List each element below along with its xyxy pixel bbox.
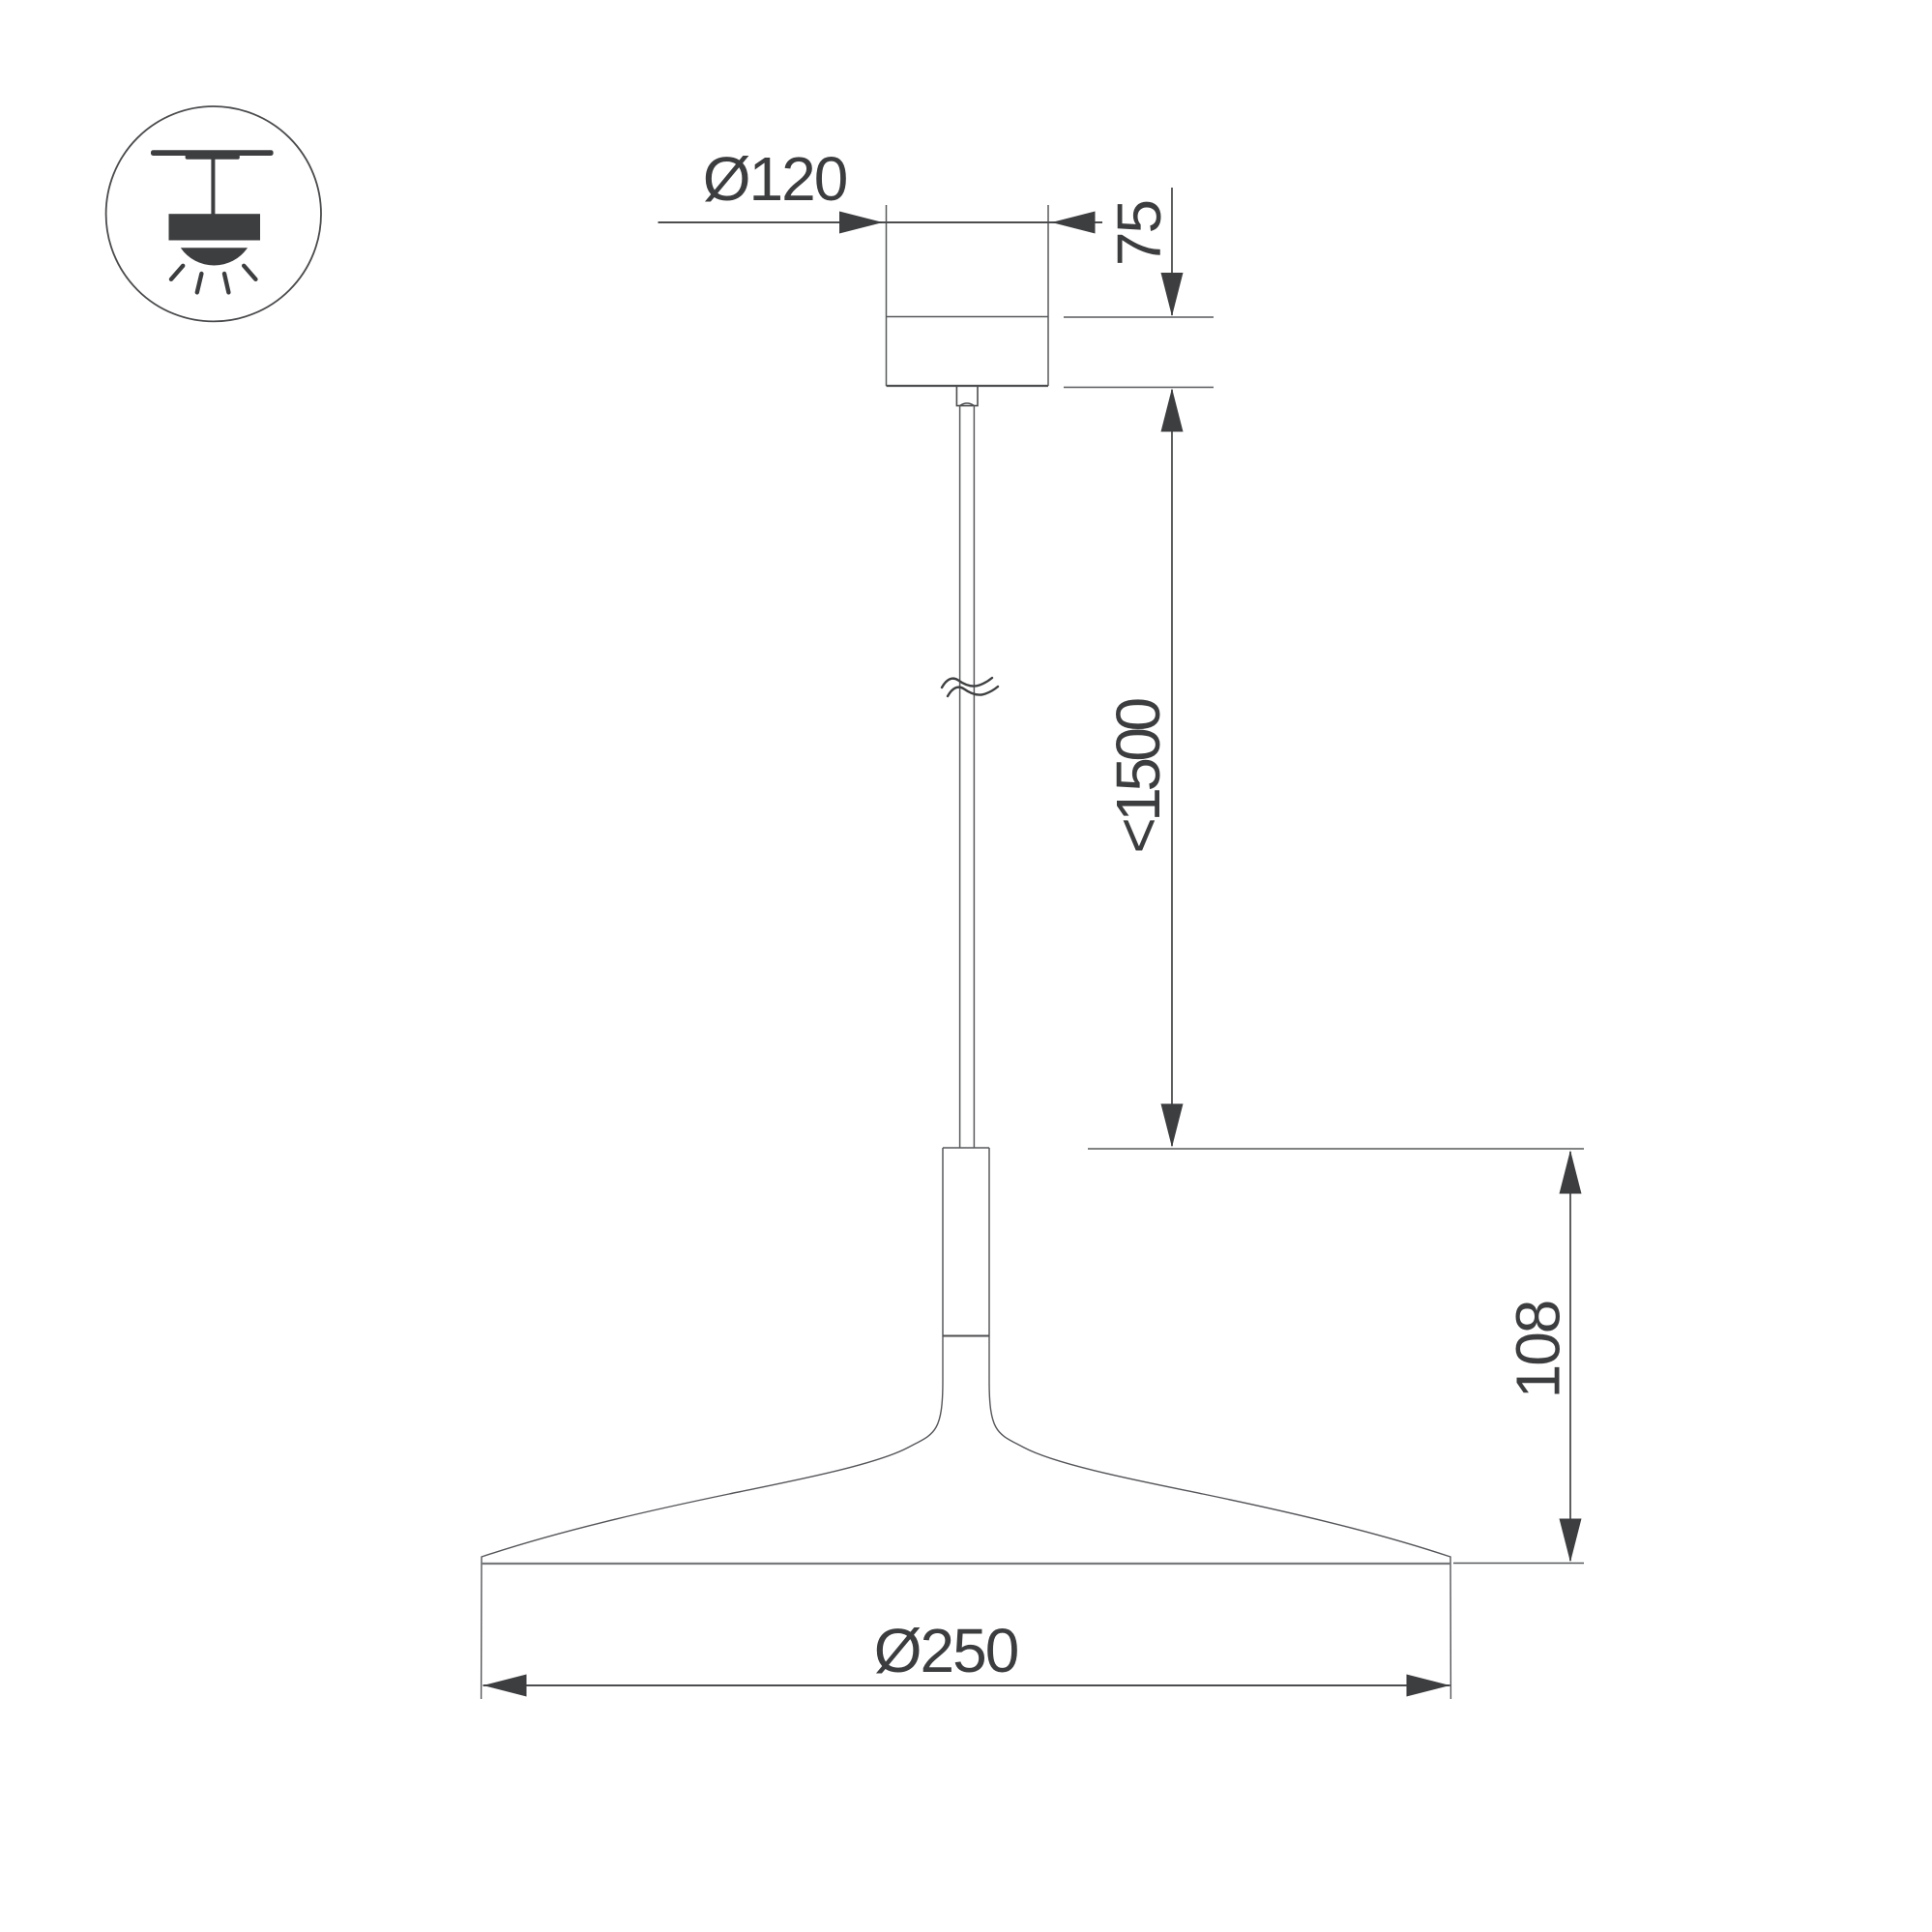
svg-text:<1500: <1500 [1103, 698, 1173, 853]
svg-text:75: 75 [1104, 201, 1174, 266]
svg-text:Ø250: Ø250 [874, 1616, 1018, 1685]
svg-text:108: 108 [1504, 1302, 1573, 1399]
svg-text:Ø120: Ø120 [703, 144, 847, 214]
